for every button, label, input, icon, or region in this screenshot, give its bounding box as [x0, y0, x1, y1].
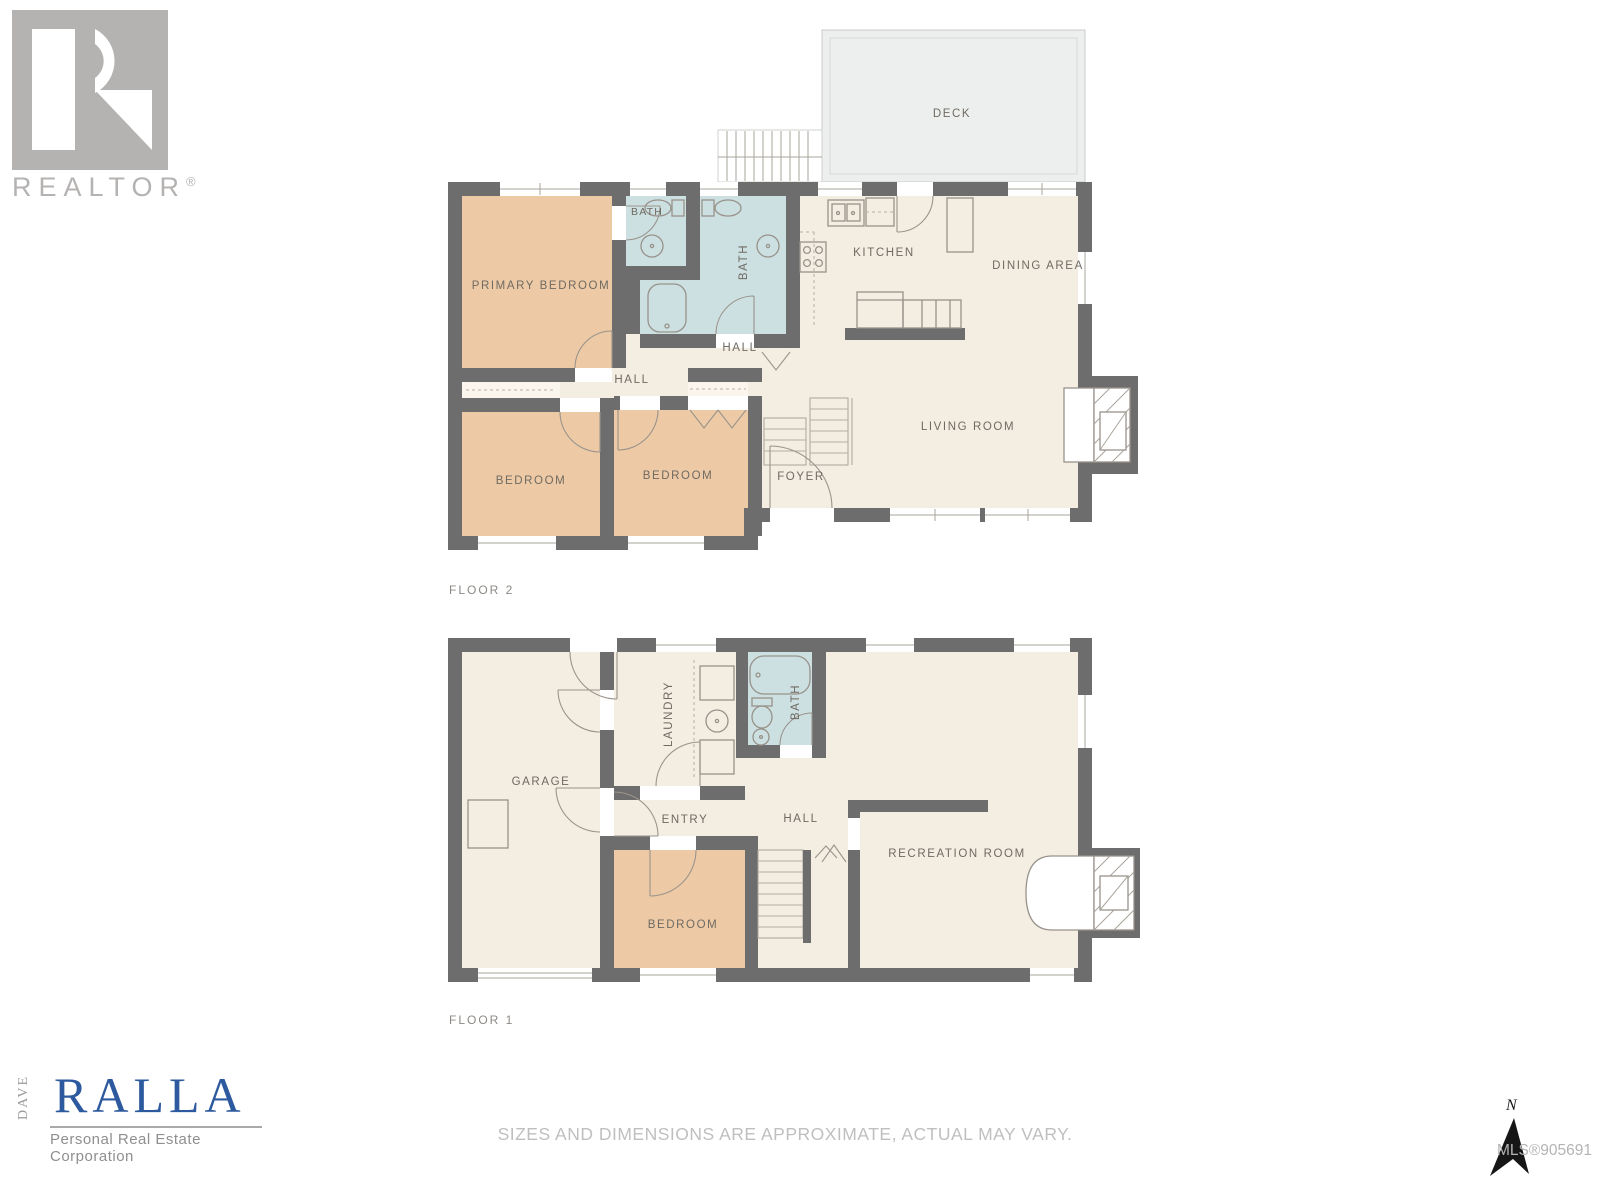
floor2-plan: DECK: [448, 30, 1138, 597]
room-label-deck: DECK: [933, 108, 971, 120]
floor2-label: FLOOR 2: [449, 583, 514, 597]
compass-north-icon: N: [1478, 1082, 1542, 1186]
fireplace-icon: [1026, 848, 1140, 938]
floor1-plan: GARAGE LAUNDRY BATH ENTRY HALL BEDROOM R…: [448, 638, 1140, 1027]
agent-tagline: Personal Real Estate Corporation: [50, 1131, 280, 1165]
room-label-bath-floor1: BATH: [790, 684, 802, 720]
deck-stairs: [718, 130, 822, 182]
floor-plan-page: REALTOR® DECK: [0, 0, 1600, 1200]
compass-north-label: N: [1505, 1097, 1518, 1114]
room-label-bath-main: BATH: [738, 244, 750, 280]
room-label-laundry: LAUNDRY: [663, 681, 675, 747]
room-label-foyer: FOYER: [777, 471, 825, 483]
agent-first-name: DAVE: [16, 1075, 32, 1120]
room-label-recreation-room: RECREATION ROOM: [888, 848, 1026, 860]
fireplace-icon: [1064, 376, 1138, 474]
room-label-bath-ensuite: BATH: [631, 206, 663, 218]
room-label-garage: GARAGE: [512, 776, 571, 788]
room-bedroom-floor1: [614, 850, 745, 968]
room-label-living-room: LIVING ROOM: [921, 421, 1015, 433]
room-label-hall-floor1: HALL: [783, 813, 818, 825]
deck: DECK: [718, 30, 1085, 182]
room-label-kitchen: KITCHEN: [853, 247, 915, 259]
room-bedroom-left: [462, 412, 600, 536]
mls-number: MLS®905691: [1497, 1142, 1592, 1160]
agent-logo: DAVE RALLA Personal Real Estate Corporat…: [30, 1056, 280, 1165]
room-label-primary-bedroom: PRIMARY BEDROOM: [472, 280, 611, 292]
room-label-hall-upper: HALL: [722, 342, 757, 354]
floor-plans-drawing: DECK: [0, 0, 1600, 1200]
floor1-label: FLOOR 1: [449, 1013, 514, 1027]
room-label-bedroom-left: BEDROOM: [496, 475, 567, 487]
room-label-entry: ENTRY: [662, 814, 709, 826]
room-label-bedroom-middle: BEDROOM: [643, 470, 714, 482]
agent-last-name: RALLA: [54, 1066, 246, 1124]
disclaimer-text: SIZES AND DIMENSIONS ARE APPROXIMATE, AC…: [390, 1124, 1180, 1145]
room-label-bedroom-floor1: BEDROOM: [648, 919, 719, 931]
room-label-hall-lower: HALL: [614, 374, 649, 386]
agent-logo-divider: [50, 1126, 262, 1128]
room-label-dining-area: DINING AREA: [992, 260, 1084, 272]
